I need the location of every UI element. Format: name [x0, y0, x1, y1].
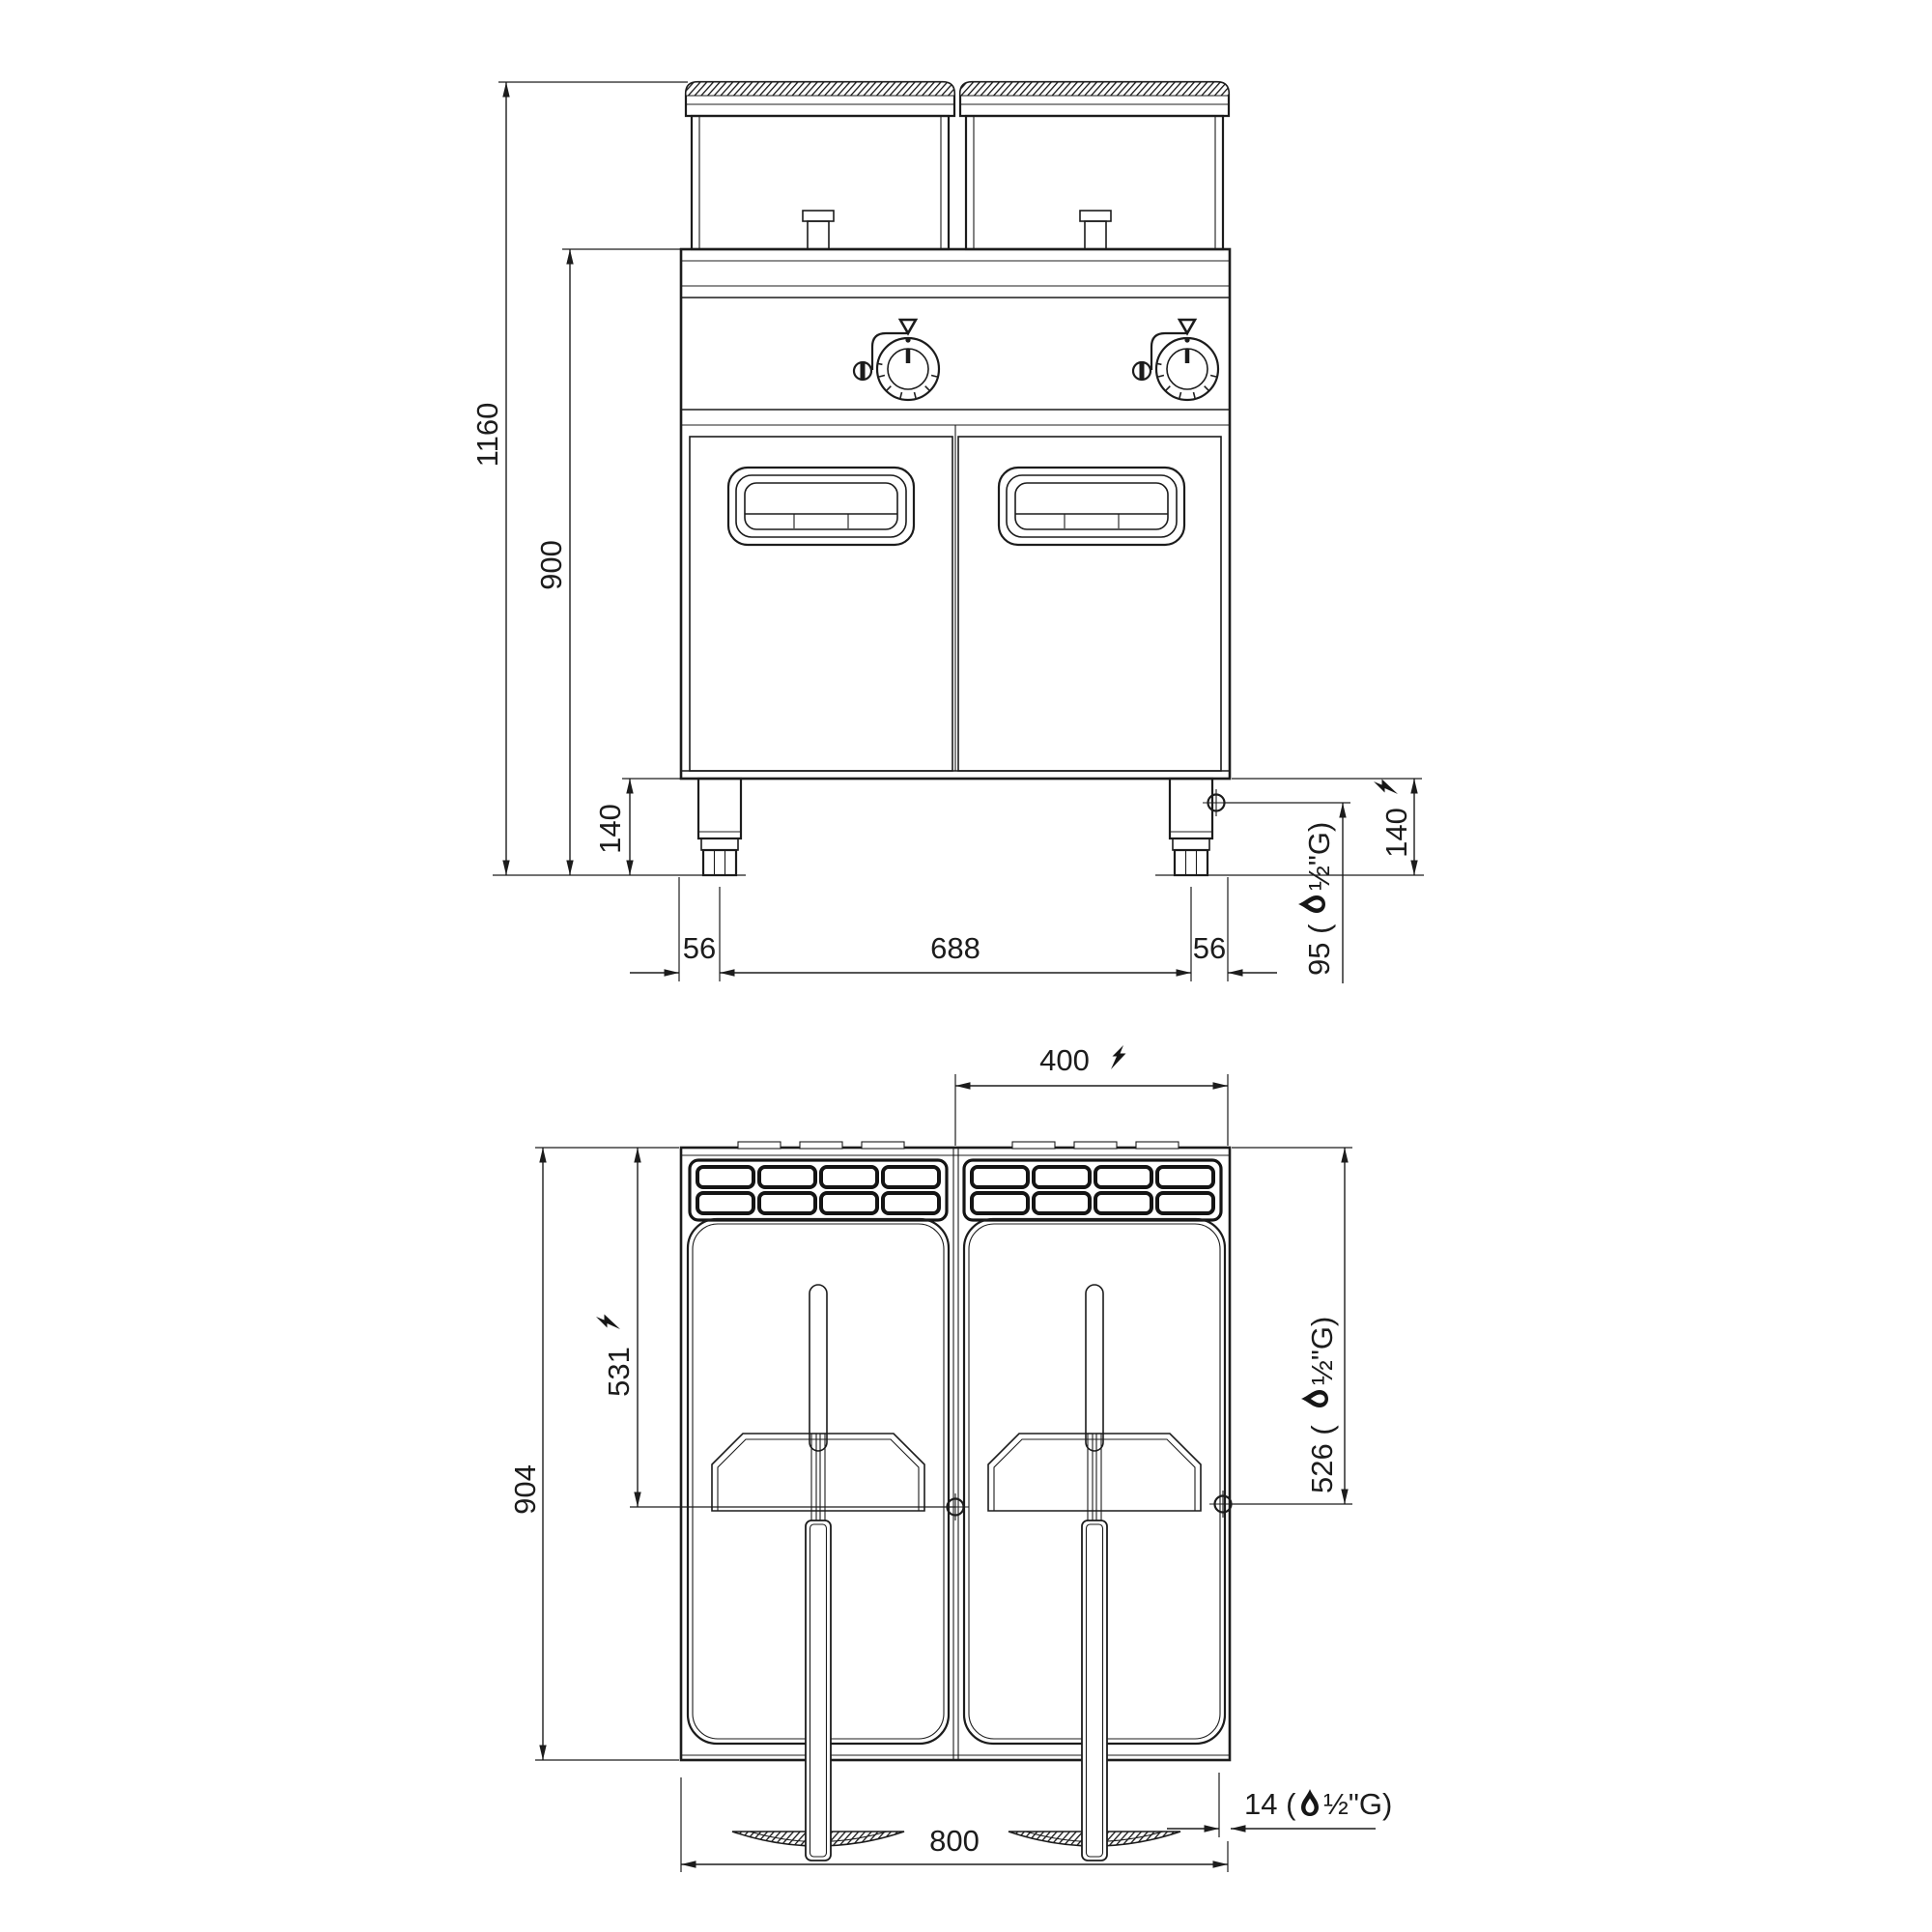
left-leg	[698, 779, 741, 875]
dim-text: 14 (	[1244, 1787, 1296, 1821]
dim-text: ½"G)	[1305, 1317, 1339, 1385]
control-panel	[854, 320, 1218, 400]
right-vent-grille	[964, 1160, 1221, 1220]
gas-connection-icon	[1301, 1789, 1319, 1816]
left-tank-front	[692, 116, 949, 249]
dim-text: ½"G)	[1302, 822, 1336, 891]
front-dimensions: 1160 900 140 140 95 ( ½"G)	[470, 82, 1424, 983]
notch	[1136, 1142, 1179, 1149]
dim-text: 95 (	[1302, 923, 1336, 976]
plan-dimensions: 400 904 531 526 ( ½"G)	[508, 1043, 1392, 1872]
left-control-knob	[872, 333, 939, 400]
electric-connection-icon	[1374, 780, 1398, 795]
label-edge-to-leg-right: 56	[1193, 931, 1226, 965]
right-lid-hatch	[960, 82, 1229, 96]
label-leg-height-right: 140	[1374, 780, 1413, 858]
dim-text: 526 (	[1305, 1425, 1339, 1493]
electric-connection-icon	[596, 1315, 620, 1330]
gas-connection-icon	[1298, 895, 1325, 913]
electric-connection-icon	[1111, 1045, 1126, 1069]
right-door	[958, 437, 1221, 771]
dim-text: 531	[602, 1347, 636, 1397]
label-total-height: 1160	[470, 403, 504, 468]
right-door-handle	[999, 468, 1184, 545]
left-basket-bracket	[808, 221, 829, 249]
dim-text: 904	[508, 1464, 542, 1515]
dim-text: 140	[1379, 808, 1413, 858]
label-gas-depth: 526 ( ½"G)	[1301, 1317, 1339, 1493]
right-basket-bracket	[1085, 221, 1106, 249]
right-pilot-icon	[1133, 362, 1151, 380]
left-vent-grille	[690, 1160, 947, 1220]
right-control-knob	[1151, 333, 1218, 400]
label-edge-to-leg-left: 56	[683, 931, 716, 965]
label-leg-height-left: 140	[593, 804, 627, 854]
plan-view: 400 904 531 526 ( ½"G)	[508, 1043, 1392, 1872]
right-basket-bracket-cap	[1080, 211, 1111, 221]
label-body-height: 900	[534, 540, 568, 590]
left-door-handle	[728, 468, 914, 545]
label-width: 800	[929, 1824, 980, 1858]
label-depth: 904	[508, 1464, 542, 1515]
notch	[800, 1142, 842, 1149]
left-tank-plan	[688, 1219, 949, 1861]
left-pilot-icon	[854, 362, 871, 380]
gas-connection-icon	[1301, 1390, 1328, 1407]
label-leg-spacing: 688	[930, 931, 980, 965]
right-tank-plan	[964, 1219, 1225, 1861]
label-elec-depth: 531	[596, 1315, 636, 1397]
label-gas-edge-offset: 14 ( ½"G)	[1244, 1787, 1392, 1821]
dim-text: 140	[593, 804, 627, 854]
fryer-tanks-front	[692, 116, 1223, 249]
notch	[1012, 1142, 1055, 1149]
notch	[862, 1142, 904, 1149]
left-basket-bracket-cap	[803, 211, 834, 221]
body-outline-plan	[681, 1148, 1230, 1760]
dim-text: 1160	[470, 403, 504, 468]
fryer-dimension-drawing: 1160 900 140 140 95 ( ½"G)	[0, 0, 1932, 1932]
front-elevation-view: 1160 900 140 140 95 ( ½"G)	[470, 82, 1424, 983]
right-leg	[1170, 779, 1212, 875]
cabinet-doors	[690, 425, 1221, 771]
dim-text: 900	[534, 540, 568, 590]
right-tank-front	[966, 116, 1223, 249]
label-center-to-edge: 400	[1039, 1043, 1090, 1077]
fryer-lids	[686, 82, 1229, 116]
dim-text: ½"G)	[1323, 1787, 1392, 1821]
notch	[1074, 1142, 1117, 1149]
label-gas-height: 95 ( ½"G)	[1298, 822, 1336, 976]
notch	[738, 1142, 781, 1149]
left-lid-hatch	[686, 82, 954, 96]
technical-drawing-page: 1160 900 140 140 95 ( ½"G)	[0, 0, 1932, 1932]
